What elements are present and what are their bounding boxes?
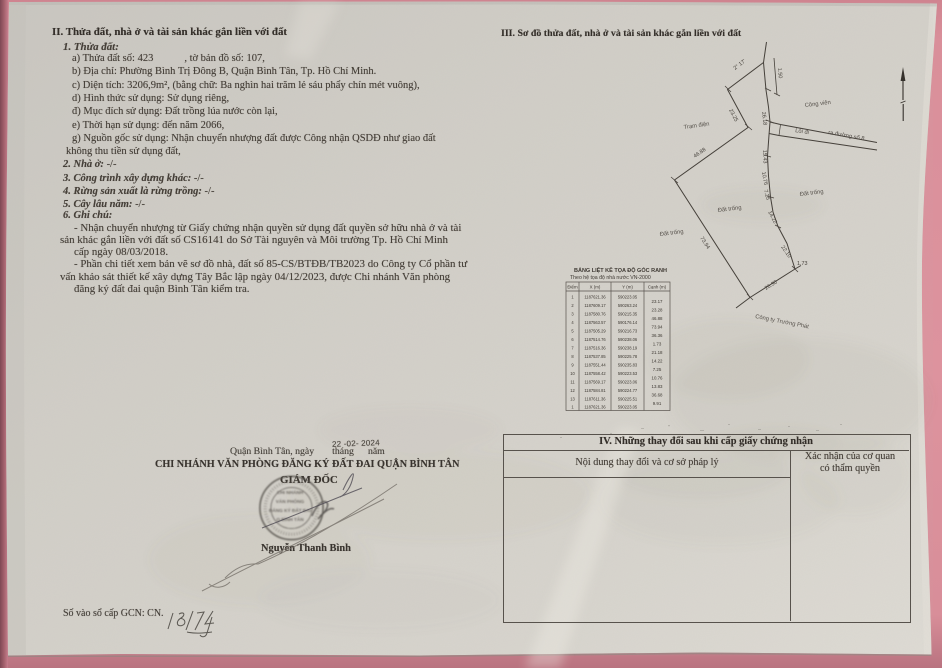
svg-text:1187505.29: 1187505.29 [584,329,606,334]
svg-text:11: 11 [570,380,575,385]
svg-text:23.28: 23.28 [652,308,664,313]
svg-text:8: 8 [571,354,574,359]
svg-text:21.18: 21.18 [652,350,664,355]
svg-text:1187569.17: 1187569.17 [584,380,606,385]
svg-text:ĐĂNG KÝ ĐẤT ĐAI: ĐĂNG KÝ ĐẤT ĐAI [269,507,311,513]
svg-text:590225.51: 590225.51 [618,397,638,402]
svg-text:BẢNG LIỆT KÊ TỌA ĐỘ GÓC RANH: BẢNG LIỆT KÊ TỌA ĐỘ GÓC RANH [574,266,667,274]
svg-text:1187609.17: 1187609.17 [584,303,606,308]
svg-text:36.68: 36.68 [652,393,664,398]
svg-text:590238.06: 590238.06 [618,337,638,342]
svg-text:23.17: 23.17 [652,299,664,304]
svg-text:7.25: 7.25 [653,367,662,372]
svg-text:14.22: 14.22 [766,210,778,225]
svg-text:15.43: 15.43 [761,150,768,164]
svg-text:Điểm: Điểm [567,285,578,290]
svg-text:1187516.36: 1187516.36 [584,346,606,351]
svg-text:Trạm điện: Trạm điện [683,121,709,131]
svg-text:Công ty Trường Phát: Công ty Trường Phát [755,314,810,330]
svg-text:590223.06: 590223.06 [618,380,638,385]
svg-text:590238.19: 590238.19 [618,346,638,351]
svg-text:590223.05: 590223.05 [618,405,638,410]
svg-text:1187551.44: 1187551.44 [584,363,606,368]
svg-text:590216.73: 590216.73 [618,329,638,334]
svg-text:590225.78: 590225.78 [618,354,638,359]
svg-text:23.25: 23.25 [727,108,739,123]
svg-text:X (m): X (m) [590,285,601,290]
svg-text:26.30: 26.30 [764,279,779,291]
svg-text:1187621.36: 1187621.36 [584,405,606,410]
svg-text:22.10: 22.10 [779,245,792,260]
svg-text:CHI NHÁNH: CHI NHÁNH [277,489,304,495]
svg-text:Lối đi: Lối đi [795,128,810,136]
svg-text:73.94: 73.94 [652,325,664,330]
svg-text:6: 6 [571,337,574,342]
svg-text:2° 17': 2° 17' [733,59,748,72]
svg-text:73.94: 73.94 [698,236,710,251]
svg-text:10: 10 [570,371,575,376]
svg-text:Đất trống: Đất trống [660,229,684,238]
svg-text:590224.77: 590224.77 [618,388,638,393]
svg-text:Cạnh (m): Cạnh (m) [648,285,667,290]
svg-text:10.76: 10.76 [760,171,768,185]
svg-text:1187611.36: 1187611.36 [584,397,606,402]
svg-text:36.36: 36.36 [652,333,664,338]
svg-text:1187580.76: 1187580.76 [584,312,606,317]
svg-text:Y (m): Y (m) [622,285,633,290]
svg-text:Đất trống: Đất trống [800,189,824,198]
svg-text:10.76: 10.76 [652,376,664,381]
svg-text:Đất trống: Đất trống [718,205,742,214]
svg-text:590176.14: 590176.14 [618,320,638,325]
svg-text:12: 12 [570,388,575,393]
svg-text:Theo hệ tọa độ nhà nước VN-200: Theo hệ tọa độ nhà nước VN-2000 [570,275,651,281]
svg-text:46.88: 46.88 [652,316,664,321]
svg-text:1.73: 1.73 [653,342,662,347]
svg-text:13: 13 [570,397,575,402]
svg-text:1.50: 1.50 [776,68,783,79]
svg-text:Công viên: Công viên [805,100,832,109]
svg-text:1.73: 1.73 [797,261,808,267]
svg-text:3: 3 [571,312,574,317]
svg-text:13.83: 13.83 [652,384,664,389]
svg-text:1187514.76: 1187514.76 [584,337,606,342]
svg-text:7.25: 7.25 [762,189,770,201]
svg-text:590235.83: 590235.83 [618,363,638,368]
svg-text:590223.53: 590223.53 [618,371,638,376]
svg-text:590263.24: 590263.24 [618,303,638,308]
svg-text:VĂN PHÒNG: VĂN PHÒNG [276,497,305,504]
svg-text:4: 4 [571,320,574,325]
svg-text:1: 1 [571,295,574,300]
svg-text:ra đường số 8: ra đường số 8 [828,130,865,142]
svg-text:1187537.85: 1187537.85 [584,354,606,359]
svg-text:9.91: 9.91 [653,401,662,406]
svg-text:1187558.42: 1187558.42 [584,371,606,376]
svg-text:5: 5 [571,329,574,334]
svg-text:590223.05: 590223.05 [618,295,638,300]
svg-text:14.22: 14.22 [652,359,664,364]
svg-text:1187621.36: 1187621.36 [584,295,606,300]
svg-text:1187563.57: 1187563.57 [584,320,606,325]
svg-text:1: 1 [571,405,574,410]
svg-text:2: 2 [571,303,574,308]
svg-text:1187584.81: 1187584.81 [584,388,606,393]
svg-text:9: 9 [571,363,574,368]
svg-text:26.18: 26.18 [760,112,768,126]
svg-text:590215.35: 590215.35 [618,312,638,317]
svg-text:7: 7 [571,346,574,351]
